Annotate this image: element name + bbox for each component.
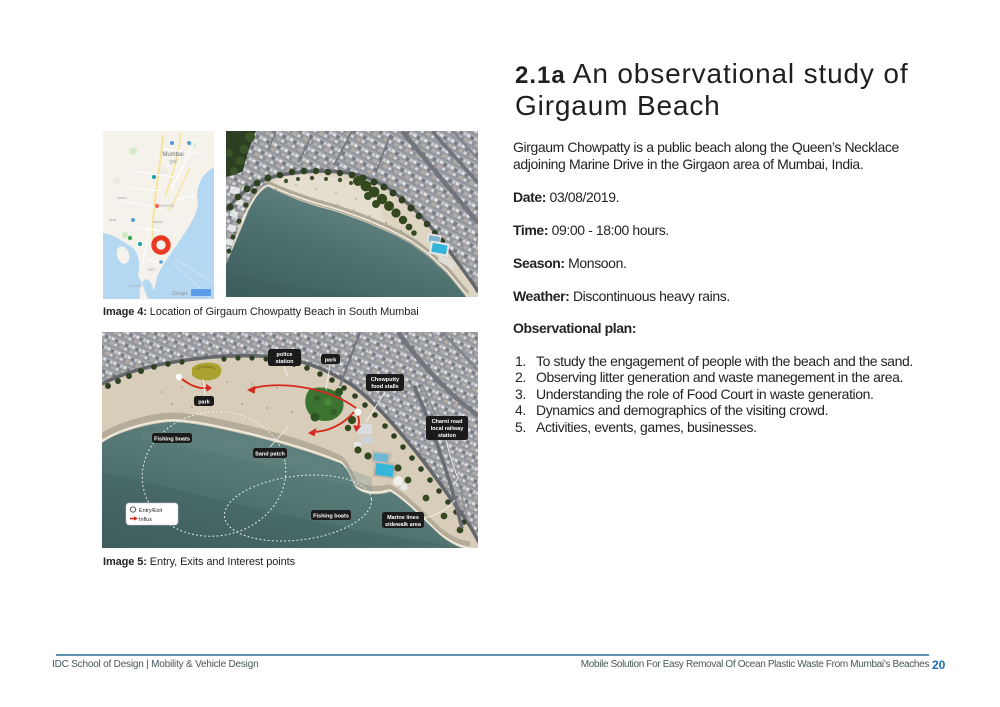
svg-text:Fishing boats: Fishing boats	[313, 514, 349, 520]
svg-text:local railway: local railway	[431, 426, 465, 432]
svg-text:Sand patch: Sand patch	[255, 452, 285, 458]
svg-text:Influx: Influx	[139, 517, 152, 523]
svg-text:park: park	[198, 400, 211, 406]
svg-text:FORT: FORT	[147, 268, 156, 272]
svg-text:Marine: Marine	[153, 220, 163, 224]
svg-text:Mumbai: Mumbai	[162, 152, 183, 158]
svg-text:Fishing boats: Fishing boats	[154, 437, 190, 443]
svg-text:Tardeo: Tardeo	[117, 196, 127, 200]
svg-text:GIRGAON: GIRGAON	[159, 204, 175, 208]
svg-text:Chowputty: Chowputty	[371, 377, 400, 383]
svg-text:police: police	[277, 352, 293, 358]
svg-text:station: station	[438, 433, 457, 439]
svg-text:Entry/Exit: Entry/Exit	[139, 508, 163, 514]
svg-text:मुंबई: मुंबई	[169, 158, 178, 165]
svg-text:station: station	[275, 359, 294, 365]
svg-text:Charni road: Charni road	[432, 419, 463, 425]
svg-text:COLABA: COLABA	[129, 284, 143, 288]
svg-text:Google: Google	[172, 291, 188, 297]
svg-text:Marine lines: Marine lines	[387, 515, 419, 521]
svg-text:Worli: Worli	[109, 218, 116, 222]
svg-text:food stalls: food stalls	[371, 384, 399, 390]
svg-text:park: park	[325, 358, 338, 364]
svg-text:sidewalk area: sidewalk area	[385, 522, 422, 528]
